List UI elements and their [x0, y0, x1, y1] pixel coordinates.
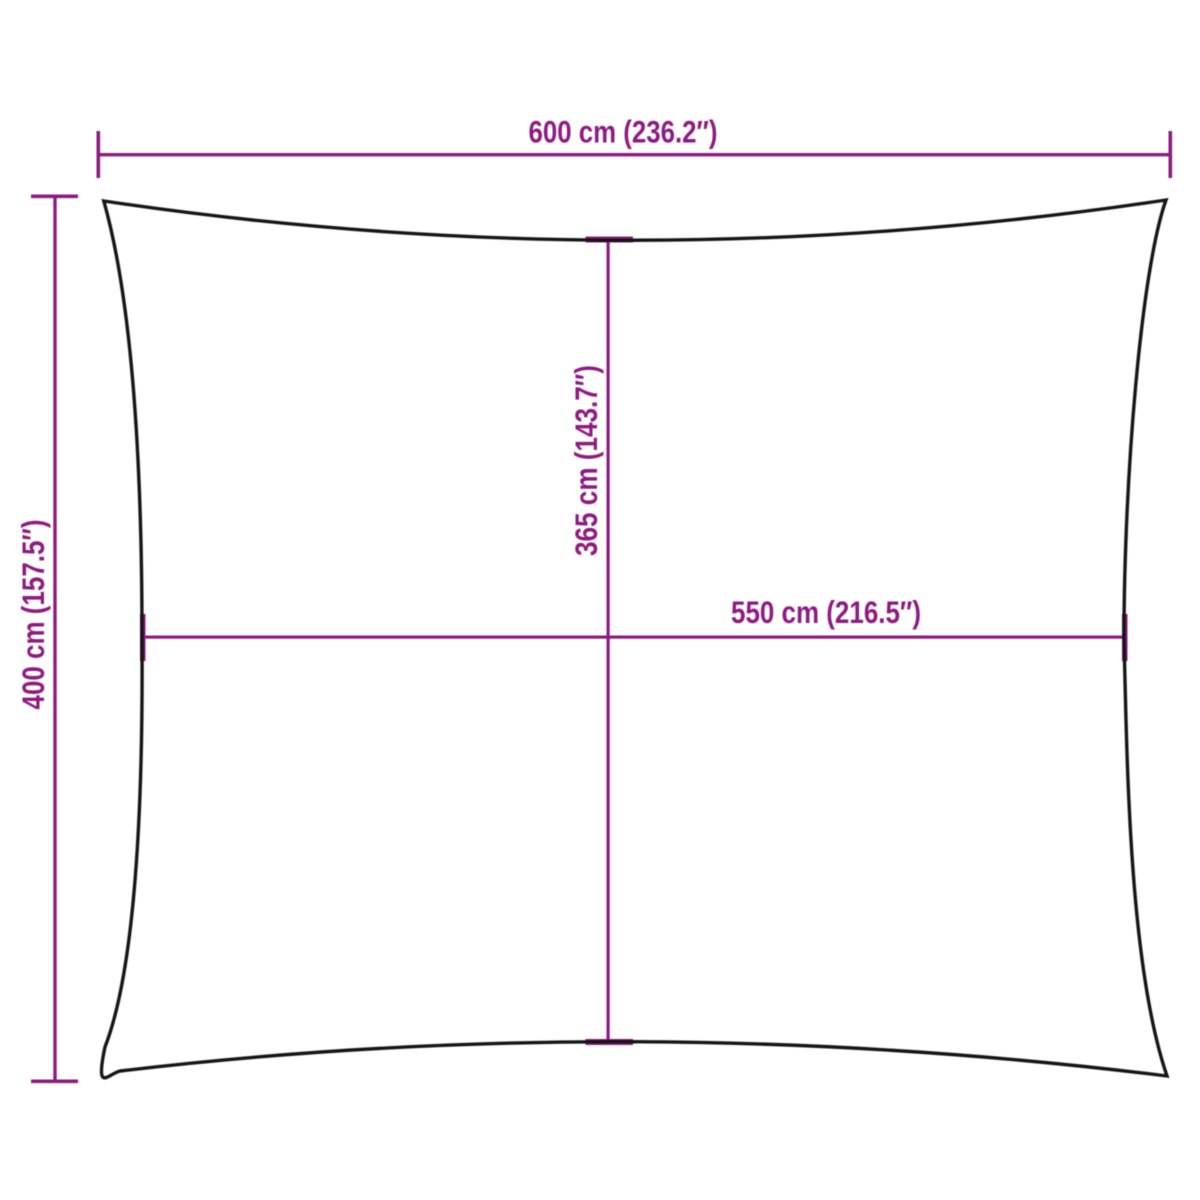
svg-text:550 cm (216.5″): 550 cm (216.5″)	[731, 594, 921, 630]
svg-text:600 cm (236.2″): 600 cm (236.2″)	[529, 114, 718, 150]
svg-text:400 cm (157.5″): 400 cm (157.5″)	[15, 520, 51, 710]
svg-text:365 cm (143.7″): 365 cm (143.7″)	[568, 365, 604, 556]
